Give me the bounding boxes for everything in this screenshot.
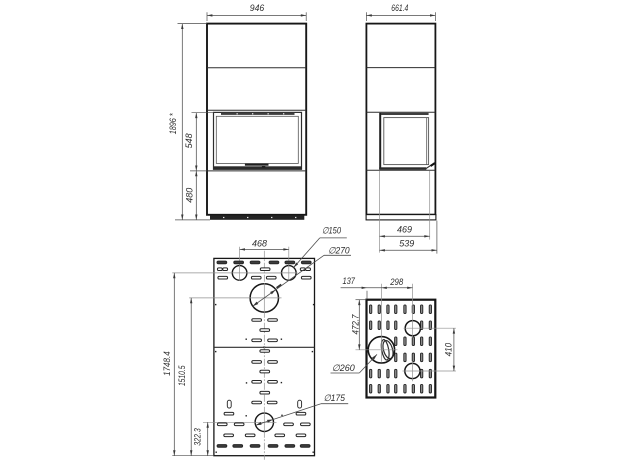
svg-text:468: 468: [252, 238, 268, 248]
svg-text:1896 *: 1896 *: [168, 113, 178, 134]
svg-text:∅150: ∅150: [322, 226, 342, 236]
svg-text:298: 298: [389, 277, 404, 287]
svg-text:322.3: 322.3: [193, 428, 203, 446]
svg-text:1748.4: 1748.4: [162, 351, 172, 376]
svg-text:472.7: 472.7: [350, 314, 360, 335]
svg-text:∅175: ∅175: [323, 393, 345, 403]
svg-text:410: 410: [444, 342, 454, 356]
svg-text:469: 469: [397, 224, 412, 234]
svg-text:∅260: ∅260: [332, 363, 356, 373]
svg-text:480: 480: [184, 187, 194, 203]
svg-text:539: 539: [399, 238, 414, 248]
svg-text:1510.5: 1510.5: [177, 365, 187, 386]
svg-text:661.4: 661.4: [391, 3, 408, 13]
svg-text:946: 946: [250, 3, 265, 13]
svg-text:137: 137: [342, 276, 355, 286]
svg-text:548: 548: [184, 133, 194, 149]
svg-text:∅270: ∅270: [328, 245, 350, 255]
